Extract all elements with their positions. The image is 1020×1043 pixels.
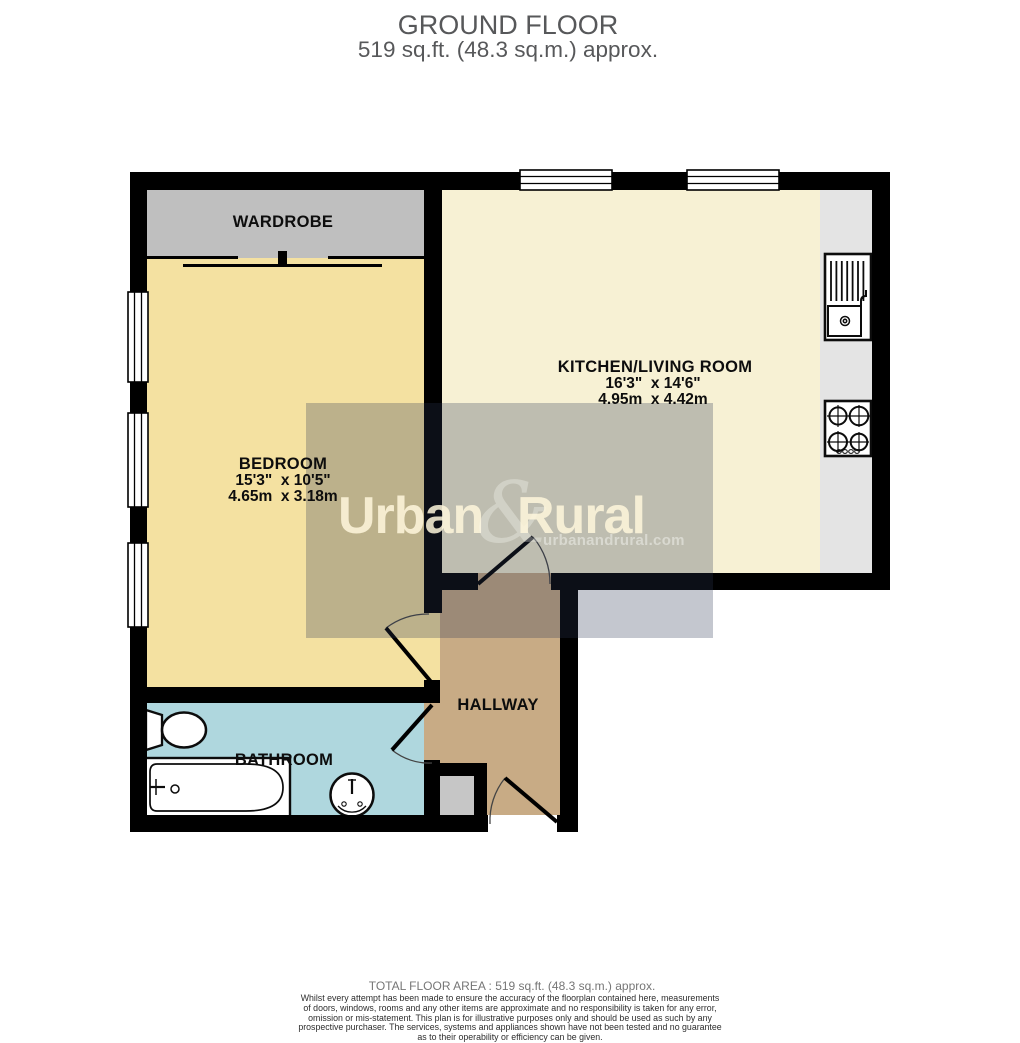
- wall-bedroom-bathroom: [130, 687, 440, 703]
- window-kitchen-top-1: [520, 170, 612, 190]
- room-dims-kitchen-metric: 4.95m x 4.42m: [598, 392, 707, 408]
- room-label-bedroom: BEDROOM: [239, 456, 327, 473]
- toilet-icon: [146, 710, 206, 750]
- room-label-wardrobe: WARDROBE: [233, 214, 333, 231]
- room-dims-bedroom-metric: 4.65m x 3.18m: [228, 489, 337, 505]
- wardrobe-door-handle: [278, 251, 287, 267]
- disclaimer-block: Whilst every attempt has been made to en…: [190, 994, 830, 1043]
- wall-right: [872, 172, 890, 590]
- room-label-kitchen-living: KITCHEN/LIVING ROOM: [558, 359, 753, 376]
- wall-bottom-left: [130, 815, 488, 832]
- room-dims-bedroom-imperial: 15'3" x 10'5": [235, 473, 330, 489]
- watermark-website: urbanandrural.com: [543, 532, 685, 549]
- watermark-word-urban: Urban: [338, 490, 483, 542]
- kitchen-hob-icon: [825, 401, 871, 456]
- window-bedroom-left-2: [128, 413, 148, 507]
- washbasin-icon: [331, 774, 374, 817]
- wall-bottom-right: [557, 815, 578, 832]
- room-dims-kitchen-imperial: 16'3" x 14'6": [605, 376, 700, 392]
- kitchen-counter: [820, 190, 872, 573]
- hallway-cupboard: [440, 776, 474, 815]
- room-label-hallway: HALLWAY: [457, 697, 538, 714]
- kitchen-sink-icon: [825, 254, 871, 340]
- total-floor-area: TOTAL FLOOR AREA : 519 sq.ft. (48.3 sq.m…: [369, 979, 656, 993]
- window-bedroom-left-3: [128, 543, 148, 627]
- window-kitchen-top-2: [687, 170, 779, 190]
- floorplan-page: GROUND FLOOR 519 sq.ft. (48.3 sq.m.) app…: [0, 0, 1020, 1043]
- window-bedroom-left-1: [128, 292, 148, 382]
- room-label-bathroom: BATHROOM: [235, 752, 333, 769]
